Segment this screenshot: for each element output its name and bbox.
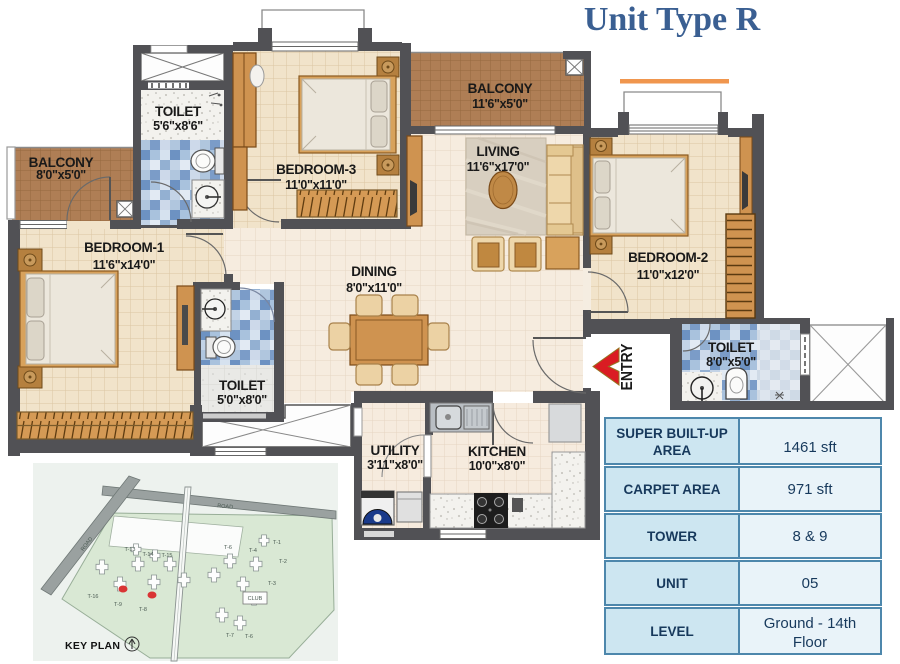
svg-text:T-13: T-13 (124, 547, 135, 553)
svg-text:BEDROOM-2: BEDROOM-2 (628, 250, 708, 265)
svg-text:T-6: T-6 (245, 634, 253, 640)
svg-text:971 sft: 971 sft (787, 481, 833, 498)
svg-text:Unit Type R: Unit Type R (584, 1, 761, 38)
svg-text:11'0"x12'0": 11'0"x12'0" (637, 268, 700, 282)
svg-text:BALCONY: BALCONY (468, 81, 533, 96)
svg-text:TOILET: TOILET (708, 340, 755, 355)
svg-text:5'0"x8'0": 5'0"x8'0" (217, 393, 267, 407)
svg-text:T-6: T-6 (224, 545, 232, 551)
svg-text:TOWER: TOWER (647, 529, 697, 544)
svg-text:Ground - 14th: Ground - 14th (764, 615, 857, 632)
svg-text:11'6"x5'0": 11'6"x5'0" (472, 97, 528, 111)
svg-text:5'6"x8'6": 5'6"x8'6" (153, 119, 203, 133)
svg-text:UTILITY: UTILITY (371, 443, 420, 458)
svg-text:05: 05 (802, 575, 819, 592)
svg-text:SUPER BUILT-UP: SUPER BUILT-UP (616, 426, 728, 441)
svg-text:T-9: T-9 (114, 602, 122, 608)
svg-text:TOILET: TOILET (219, 378, 266, 393)
svg-text:8'0"x11'0": 8'0"x11'0" (346, 281, 402, 295)
svg-text:T-15: T-15 (161, 553, 172, 559)
svg-text:8 & 9: 8 & 9 (792, 528, 827, 545)
svg-text:KEY PLAN: KEY PLAN (65, 640, 120, 652)
svg-text:11'0"x11'0": 11'0"x11'0" (285, 178, 347, 192)
svg-text:BEDROOM-3: BEDROOM-3 (276, 162, 357, 177)
svg-text:10'0"x8'0": 10'0"x8'0" (469, 459, 526, 473)
svg-text:1461 sft: 1461 sft (783, 439, 837, 456)
svg-text:LEVEL: LEVEL (650, 624, 694, 639)
svg-text:11'6"x14'0": 11'6"x14'0" (93, 258, 156, 272)
svg-text:T-14: T-14 (142, 552, 153, 558)
svg-text:Floor: Floor (793, 634, 827, 651)
svg-text:AREA: AREA (653, 443, 692, 458)
svg-text:DINING: DINING (351, 264, 396, 279)
svg-text:T-7: T-7 (226, 633, 234, 639)
svg-text:T-2: T-2 (279, 559, 287, 565)
svg-text:T-4: T-4 (249, 548, 257, 554)
svg-text:T-1: T-1 (273, 540, 281, 546)
svg-text:8'0"x5'0": 8'0"x5'0" (36, 168, 86, 182)
svg-text:T-3: T-3 (268, 581, 276, 587)
svg-text:8'0"x5'0": 8'0"x5'0" (706, 355, 756, 369)
svg-text:KITCHEN: KITCHEN (468, 444, 526, 459)
svg-text:BEDROOM-1: BEDROOM-1 (84, 240, 165, 255)
svg-text:LIVING: LIVING (476, 144, 519, 159)
svg-text:3'11"x8'0": 3'11"x8'0" (367, 458, 423, 472)
svg-text:ENTRY: ENTRY (619, 343, 636, 390)
svg-text:CARPET AREA: CARPET AREA (623, 482, 720, 497)
svg-text:T-8: T-8 (139, 607, 147, 613)
svg-text:T-16: T-16 (87, 594, 98, 600)
svg-text:11'6"x17'0": 11'6"x17'0" (467, 160, 530, 174)
svg-text:TOILET: TOILET (155, 104, 202, 119)
svg-text:UNIT: UNIT (656, 576, 688, 591)
svg-text:CLUB: CLUB (248, 596, 263, 602)
